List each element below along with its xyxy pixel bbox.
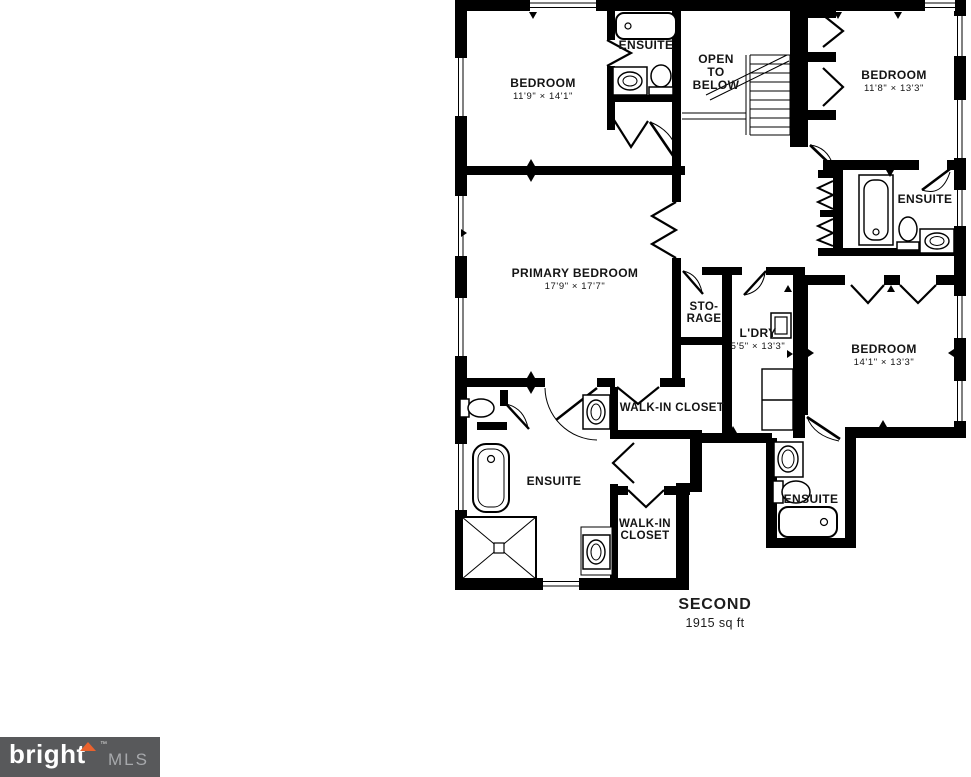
room-label-bedroom-top-left: BEDROOM 11'9" × 14'1"	[510, 77, 575, 102]
floorplan-canvas: BEDROOM 11'9" × 14'1" ENSUITE OPEN TO BE…	[0, 0, 971, 777]
room-label-ensuite-primary: ENSUITE	[527, 475, 582, 488]
window-top-left	[530, 0, 596, 11]
room-label-walk-in-closet-top: WALK-IN CLOSET	[620, 402, 725, 414]
window-top-right	[925, 0, 955, 11]
bathtub-symbol-top-ensuite	[616, 13, 676, 39]
logo-brand-text: bright	[9, 739, 86, 770]
logo-triangle-icon	[80, 742, 96, 751]
room-label-primary-bedroom: PRIMARY BEDROOM 17'9" × 17'7"	[512, 267, 639, 292]
sink-symbol-bottom-ensuite	[774, 442, 803, 477]
toilet-symbol-right-ensuite	[897, 217, 919, 250]
room-label-storage: STO- RAGE	[687, 301, 722, 325]
sink-symbol-primary-ensuite-south	[581, 527, 612, 575]
toilet-symbol-top-ensuite	[649, 65, 673, 95]
room-label-open-to-below: OPEN TO BELOW	[693, 53, 740, 92]
floor-area: 1915 sq ft	[678, 616, 751, 630]
room-label-walk-in-closet-bottom: WALK-IN CLOSET	[619, 518, 671, 542]
window-bottom	[543, 578, 579, 590]
sink-symbol-primary-ensuite-north	[583, 395, 610, 429]
room-label-bedroom-right: BEDROOM 14'1" × 13'3"	[851, 343, 916, 368]
sink-symbol-right-ensuite	[920, 229, 954, 253]
freestanding-tub-symbol-primary-ensuite	[473, 444, 509, 512]
logo-trademark: ™	[100, 741, 107, 748]
logo-suffix-text: MLS	[108, 750, 149, 770]
room-label-bedroom-top-right: BEDROOM 11'8" × 13'3"	[861, 69, 926, 94]
floor-name: SECOND	[678, 596, 751, 614]
room-label-laundry: L'DRY 5'5" × 13'3"	[731, 327, 786, 352]
bright-mls-logo: bright ™ MLS	[0, 737, 160, 777]
washer-dryer-symbol	[762, 369, 793, 430]
bathtub-symbol-bottom-ensuite	[779, 507, 837, 537]
floorplan-drawing	[0, 0, 971, 777]
room-label-ensuite-top: ENSUITE	[619, 39, 674, 52]
room-label-ensuite-right: ENSUITE	[898, 193, 953, 206]
room-label-ensuite-bottom: ENSUITE	[784, 493, 839, 506]
toilet-symbol-primary-ensuite	[460, 399, 494, 417]
bathtub-symbol-right-ensuite	[859, 175, 893, 245]
shower-symbol-primary-ensuite	[462, 517, 536, 579]
floor-title: SECOND 1915 sq ft	[678, 596, 751, 630]
sink-symbol-top-ensuite	[613, 67, 647, 95]
